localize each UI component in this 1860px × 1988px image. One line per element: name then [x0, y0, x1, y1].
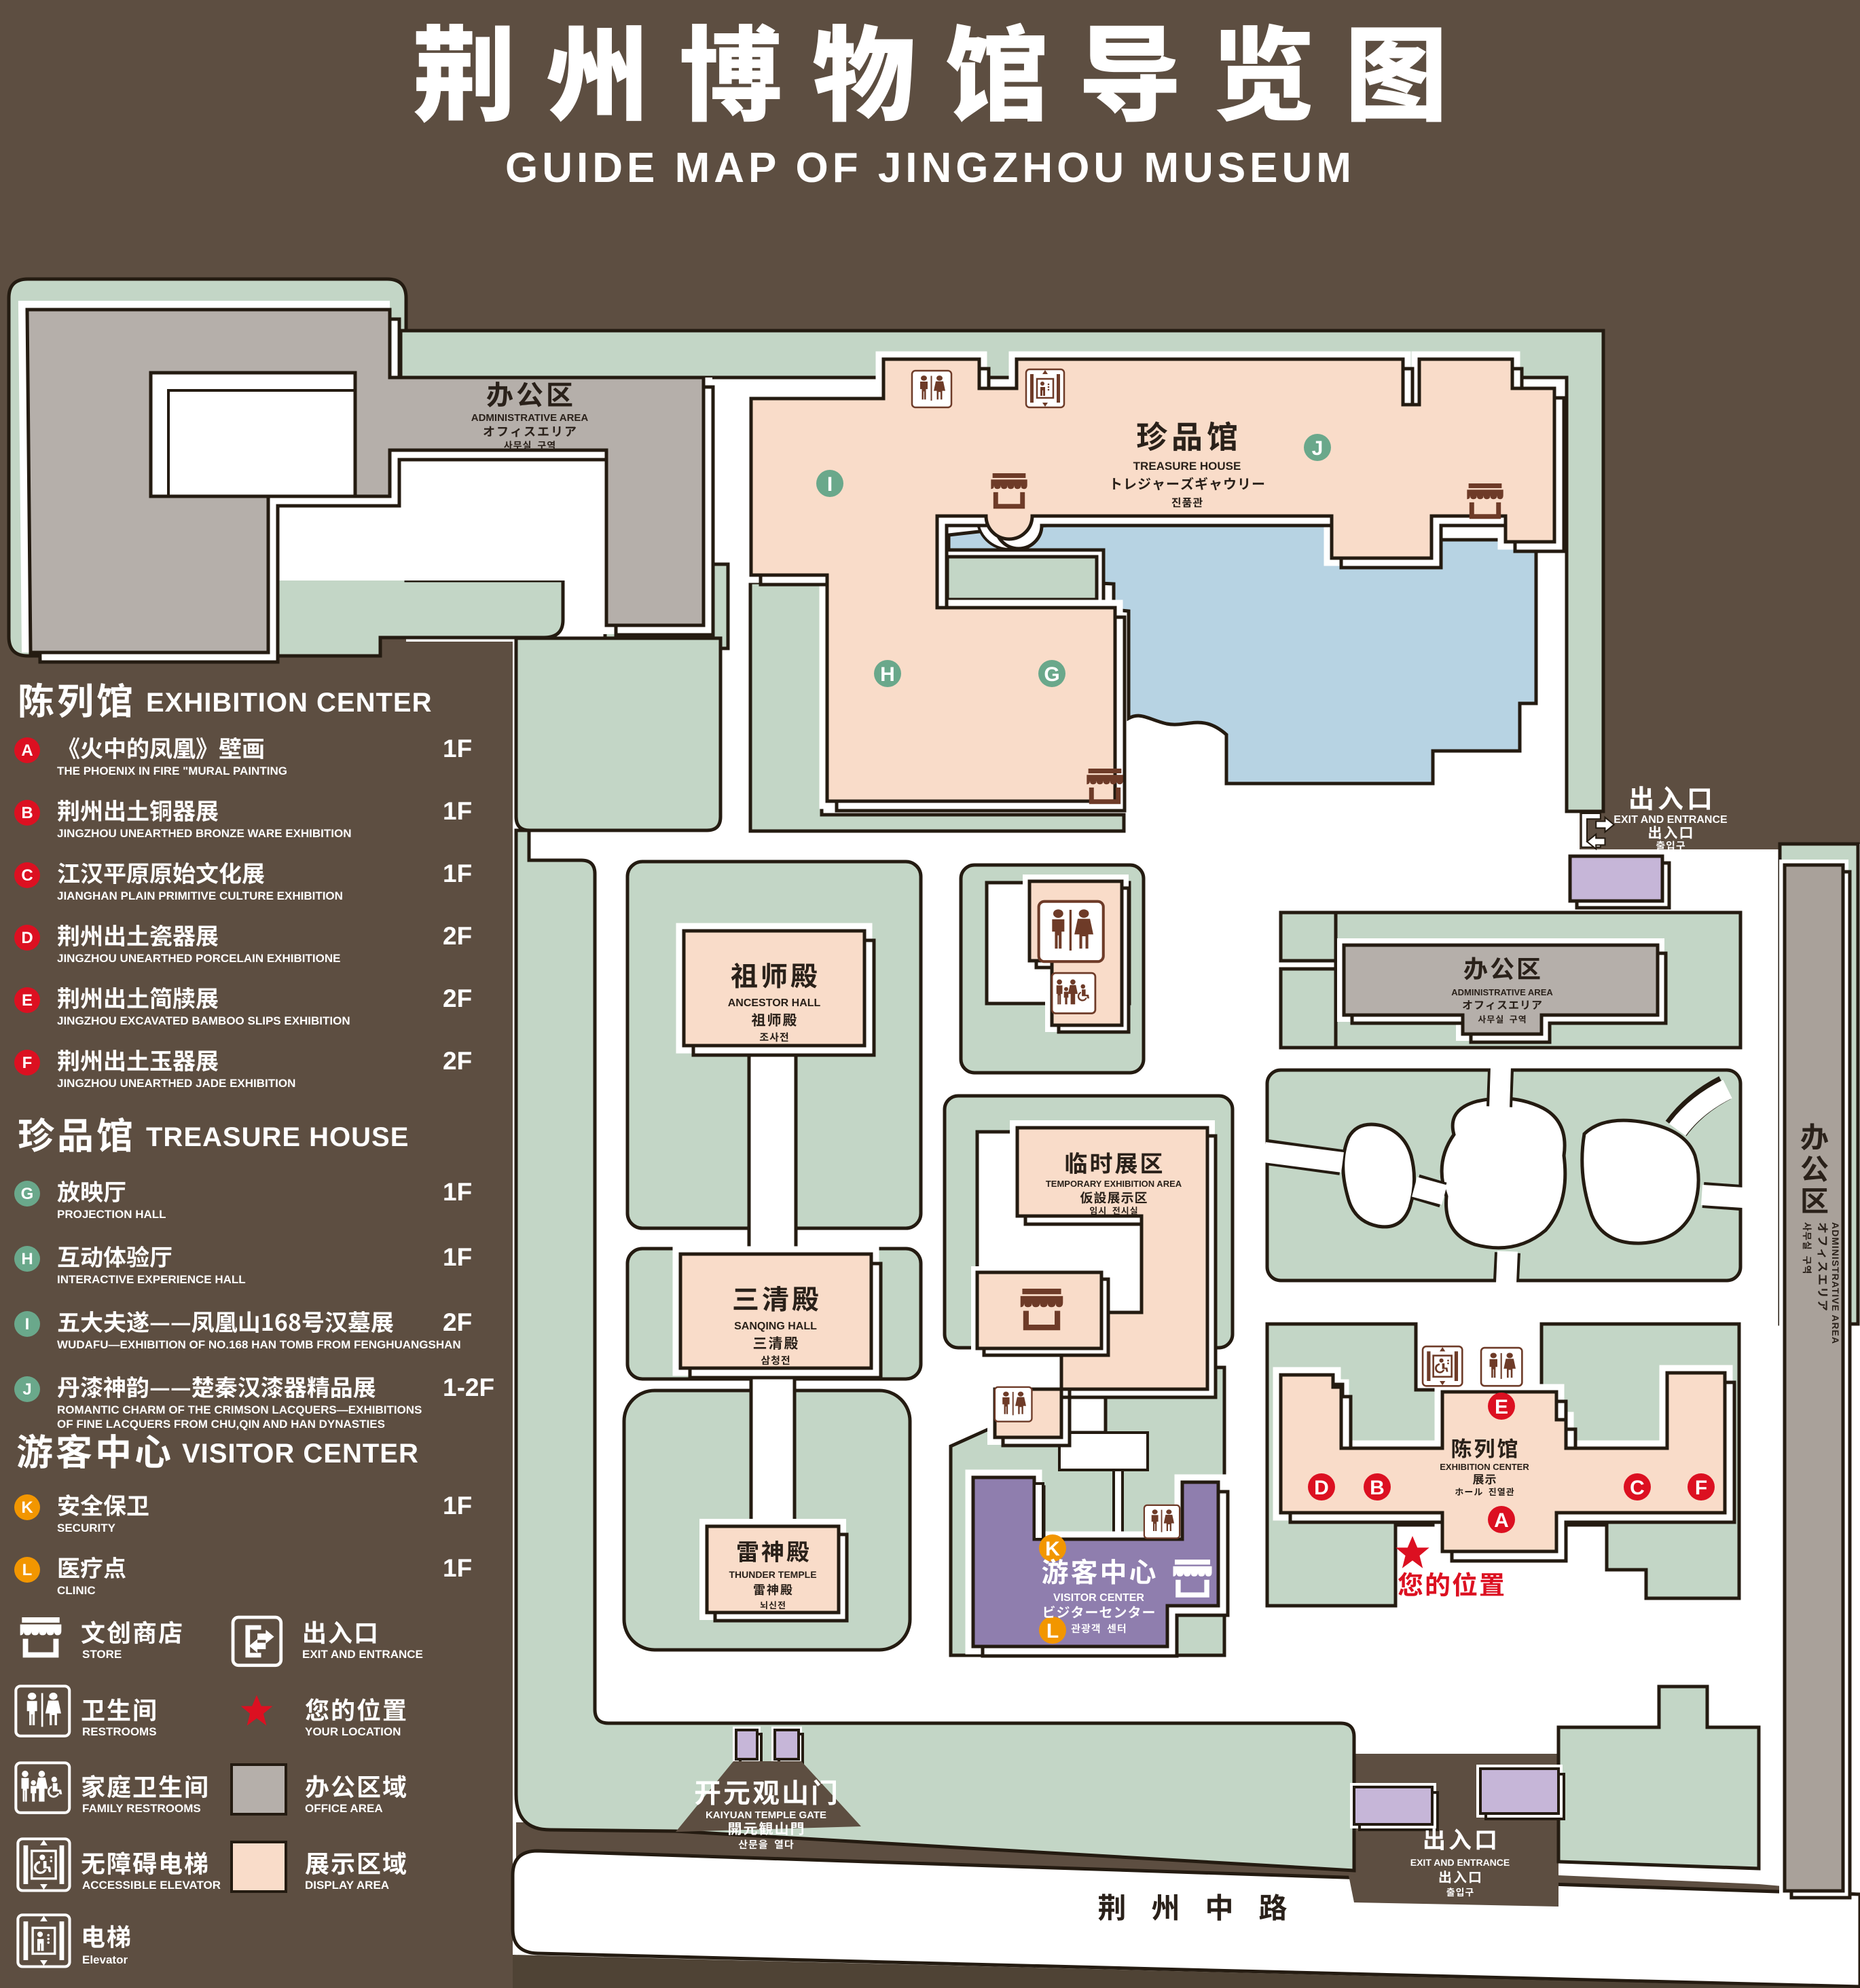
- svg-text:B: B: [21, 804, 33, 822]
- svg-text:VISITOR CENTER: VISITOR CENTER: [182, 1439, 419, 1469]
- svg-text:1F: 1F: [443, 735, 472, 762]
- svg-text:2F: 2F: [443, 1047, 472, 1075]
- svg-text:E: E: [1495, 1396, 1508, 1418]
- svg-text:JINGZHOU EXCAVATED BAMBOO SLIP: JINGZHOU EXCAVATED BAMBOO SLIPS EXHIBITI…: [57, 1014, 350, 1027]
- svg-text:STORE: STORE: [82, 1648, 122, 1661]
- svg-text:G: G: [1044, 663, 1059, 686]
- svg-text:JINGZHOU UNEARTHED JADE EXHIBI: JINGZHOU UNEARTHED JADE EXHIBITION: [57, 1077, 295, 1090]
- svg-text:ADMINISTRATIVE AREA: ADMINISTRATIVE AREA: [471, 412, 589, 424]
- svg-text:2F: 2F: [443, 922, 472, 950]
- svg-text:1F: 1F: [443, 1243, 472, 1271]
- svg-text:1F: 1F: [443, 860, 472, 887]
- svg-text:TEMPORARY EXHIBITION AREA: TEMPORARY EXHIBITION AREA: [1046, 1179, 1182, 1189]
- svg-text:L: L: [22, 1561, 33, 1579]
- svg-text:SECURITY: SECURITY: [57, 1522, 116, 1534]
- svg-text:OFFICE AREA: OFFICE AREA: [305, 1802, 383, 1815]
- svg-text:TREASURE HOUSE: TREASURE HOUSE: [1133, 460, 1241, 473]
- svg-text:EXHIBITION CENTER: EXHIBITION CENTER: [146, 688, 432, 718]
- svg-text:J: J: [22, 1380, 31, 1399]
- svg-text:H: H: [880, 663, 895, 686]
- svg-text:KAIYUAN TEMPLE GATE: KAIYUAN TEMPLE GATE: [706, 1809, 826, 1821]
- svg-text:1-2F: 1-2F: [443, 1374, 494, 1401]
- svg-text:DISPLAY AREA: DISPLAY AREA: [305, 1879, 389, 1892]
- svg-text:F: F: [22, 1054, 33, 1072]
- svg-text:Elevator: Elevator: [82, 1953, 128, 1966]
- svg-text:JINGZHOU UNEARTHED BRONZE WARE: JINGZHOU UNEARTHED BRONZE WARE EXHIBITIO…: [57, 827, 352, 840]
- svg-text:1F: 1F: [443, 1492, 472, 1520]
- svg-text:WUDAFU—EXHIBITION OF NO.168 HA: WUDAFU—EXHIBITION OF NO.168 HAN TOMB FRO…: [57, 1338, 461, 1351]
- svg-text:J: J: [1312, 437, 1324, 460]
- svg-text:1F: 1F: [443, 1178, 472, 1206]
- svg-text:2F: 2F: [443, 1308, 472, 1336]
- svg-text:G: G: [21, 1185, 34, 1203]
- svg-text:C: C: [1630, 1477, 1645, 1499]
- svg-text:THUNDER TEMPLE: THUNDER TEMPLE: [729, 1569, 816, 1580]
- svg-text:INTERACTIVE EXPERIENCE HALL: INTERACTIVE EXPERIENCE HALL: [57, 1273, 246, 1286]
- svg-text:1F: 1F: [443, 797, 472, 825]
- svg-text:GUIDE MAP OF JINGZHOU MUSEUM: GUIDE MAP OF JINGZHOU MUSEUM: [505, 145, 1355, 191]
- svg-text:E: E: [22, 991, 33, 1010]
- svg-text:EXIT AND ENTRANCE: EXIT AND ENTRANCE: [302, 1648, 423, 1661]
- svg-text:F: F: [1695, 1477, 1707, 1499]
- svg-text:FAMILY RESTROOMS: FAMILY RESTROOMS: [82, 1802, 201, 1815]
- svg-text:EXHIBITION CENTER: EXHIBITION CENTER: [1440, 1462, 1529, 1472]
- svg-text:D: D: [21, 929, 33, 947]
- svg-text:ADMINISTRATIVE AREA: ADMINISTRATIVE AREA: [1830, 1222, 1841, 1344]
- svg-text:RESTROOMS: RESTROOMS: [82, 1725, 157, 1738]
- svg-text:A: A: [1494, 1509, 1509, 1532]
- svg-text:K: K: [1045, 1538, 1060, 1560]
- svg-text:VISITOR CENTER: VISITOR CENTER: [1053, 1592, 1144, 1604]
- svg-text:CLINIC: CLINIC: [57, 1584, 96, 1597]
- svg-text:JINGZHOU UNEARTHED PORCELAIN E: JINGZHOU UNEARTHED PORCELAIN EXHIBITIONE: [57, 952, 340, 965]
- svg-text:ROMANTIC CHARM OF THE CRIMSON: ROMANTIC CHARM OF THE CRIMSON LACQUERS—E…: [57, 1403, 422, 1416]
- svg-text:THE PHOENIX IN FIRE "MURAL PAI: THE PHOENIX IN FIRE "MURAL PAINTING: [57, 765, 287, 777]
- svg-text:EXIT AND ENTRANCE: EXIT AND ENTRANCE: [1410, 1857, 1510, 1868]
- svg-text:SANQING HALL: SANQING HALL: [734, 1321, 817, 1332]
- svg-text:2F: 2F: [443, 984, 472, 1012]
- svg-text:EXIT AND ENTRANCE: EXIT AND ENTRANCE: [1613, 814, 1728, 826]
- svg-text:PROJECTION HALL: PROJECTION HALL: [57, 1208, 166, 1221]
- svg-text:I: I: [25, 1315, 30, 1333]
- svg-text:TREASURE HOUSE: TREASURE HOUSE: [146, 1122, 409, 1152]
- svg-text:ADMINISTRATIVE AREA: ADMINISTRATIVE AREA: [1451, 987, 1553, 997]
- svg-text:JIANGHAN PLAIN PRIMITIVE CULTU: JIANGHAN PLAIN PRIMITIVE CULTURE EXHIBIT…: [57, 889, 343, 902]
- svg-text:YOUR LOCATION: YOUR LOCATION: [305, 1725, 401, 1738]
- svg-text:D: D: [1314, 1477, 1329, 1499]
- svg-text:H: H: [21, 1250, 33, 1268]
- svg-text:L: L: [1046, 1620, 1059, 1642]
- svg-text:A: A: [21, 741, 33, 760]
- svg-text:C: C: [21, 866, 33, 885]
- svg-text:I: I: [827, 473, 833, 496]
- svg-text:K: K: [21, 1498, 33, 1517]
- svg-text:ANCESTOR HALL: ANCESTOR HALL: [728, 997, 821, 1009]
- svg-text:OF FINE LACQUERS FROM CHU,QIN: OF FINE LACQUERS FROM CHU,QIN AND HAN DY…: [57, 1418, 385, 1431]
- svg-text:1F: 1F: [443, 1554, 472, 1582]
- svg-text:ACCESSIBLE ELEVATOR: ACCESSIBLE ELEVATOR: [82, 1879, 221, 1892]
- svg-text:B: B: [1370, 1477, 1385, 1499]
